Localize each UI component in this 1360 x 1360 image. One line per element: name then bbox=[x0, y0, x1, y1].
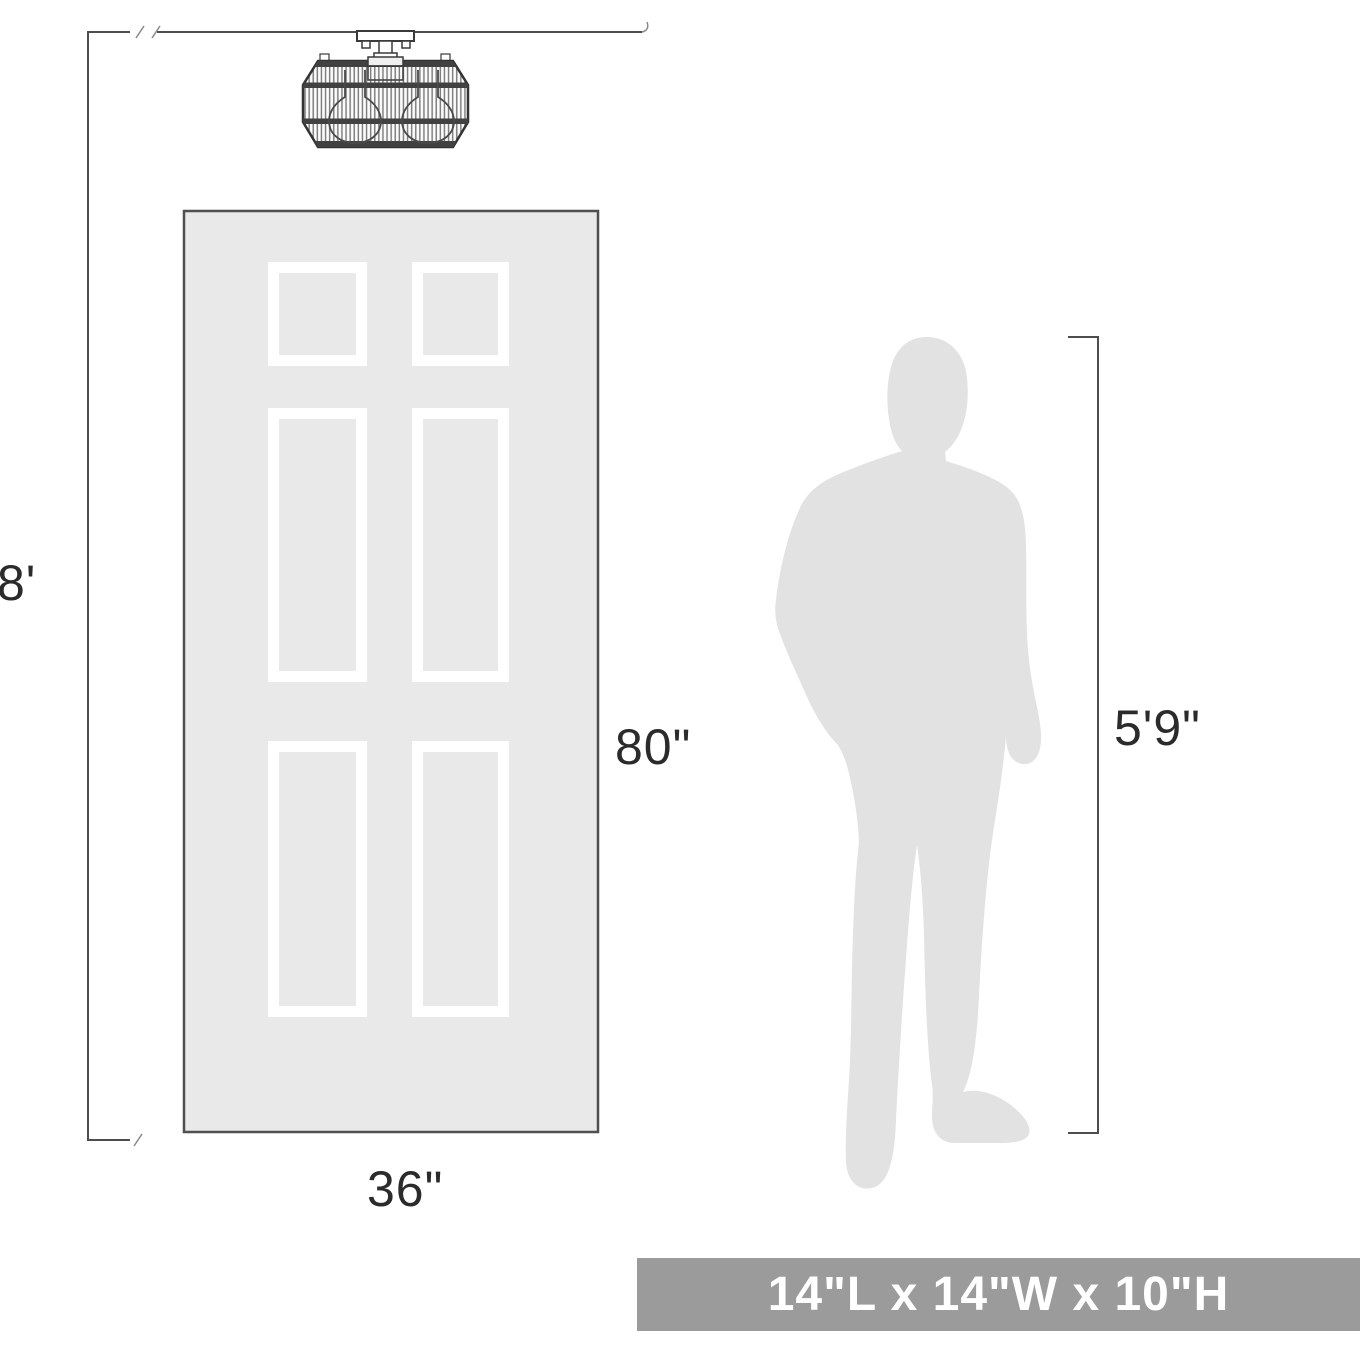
flush-mount-ceiling-light-icon bbox=[300, 31, 471, 147]
six-panel-door-icon bbox=[184, 211, 598, 1132]
person-height-label: 5'9" bbox=[1114, 703, 1201, 753]
product-dimension-diagram: 8' 80" 36" 5'9" 14"L x 14"W x 10"H bbox=[0, 0, 1360, 1360]
door-height-label: 80" bbox=[615, 722, 691, 772]
standing-man-silhouette-icon bbox=[775, 337, 1041, 1189]
dimension-bar-text: 14"L x 14"W x 10"H bbox=[768, 1267, 1230, 1322]
person-height-dimension-line bbox=[1068, 337, 1098, 1133]
door-width-label: 36" bbox=[367, 1164, 443, 1214]
ceiling-height-dimension-line bbox=[88, 32, 142, 1146]
dimension-bar: 14"L x 14"W x 10"H bbox=[637, 1258, 1360, 1331]
scale-illustration bbox=[0, 0, 1360, 1360]
ceiling-height-label: 8' bbox=[0, 558, 36, 608]
